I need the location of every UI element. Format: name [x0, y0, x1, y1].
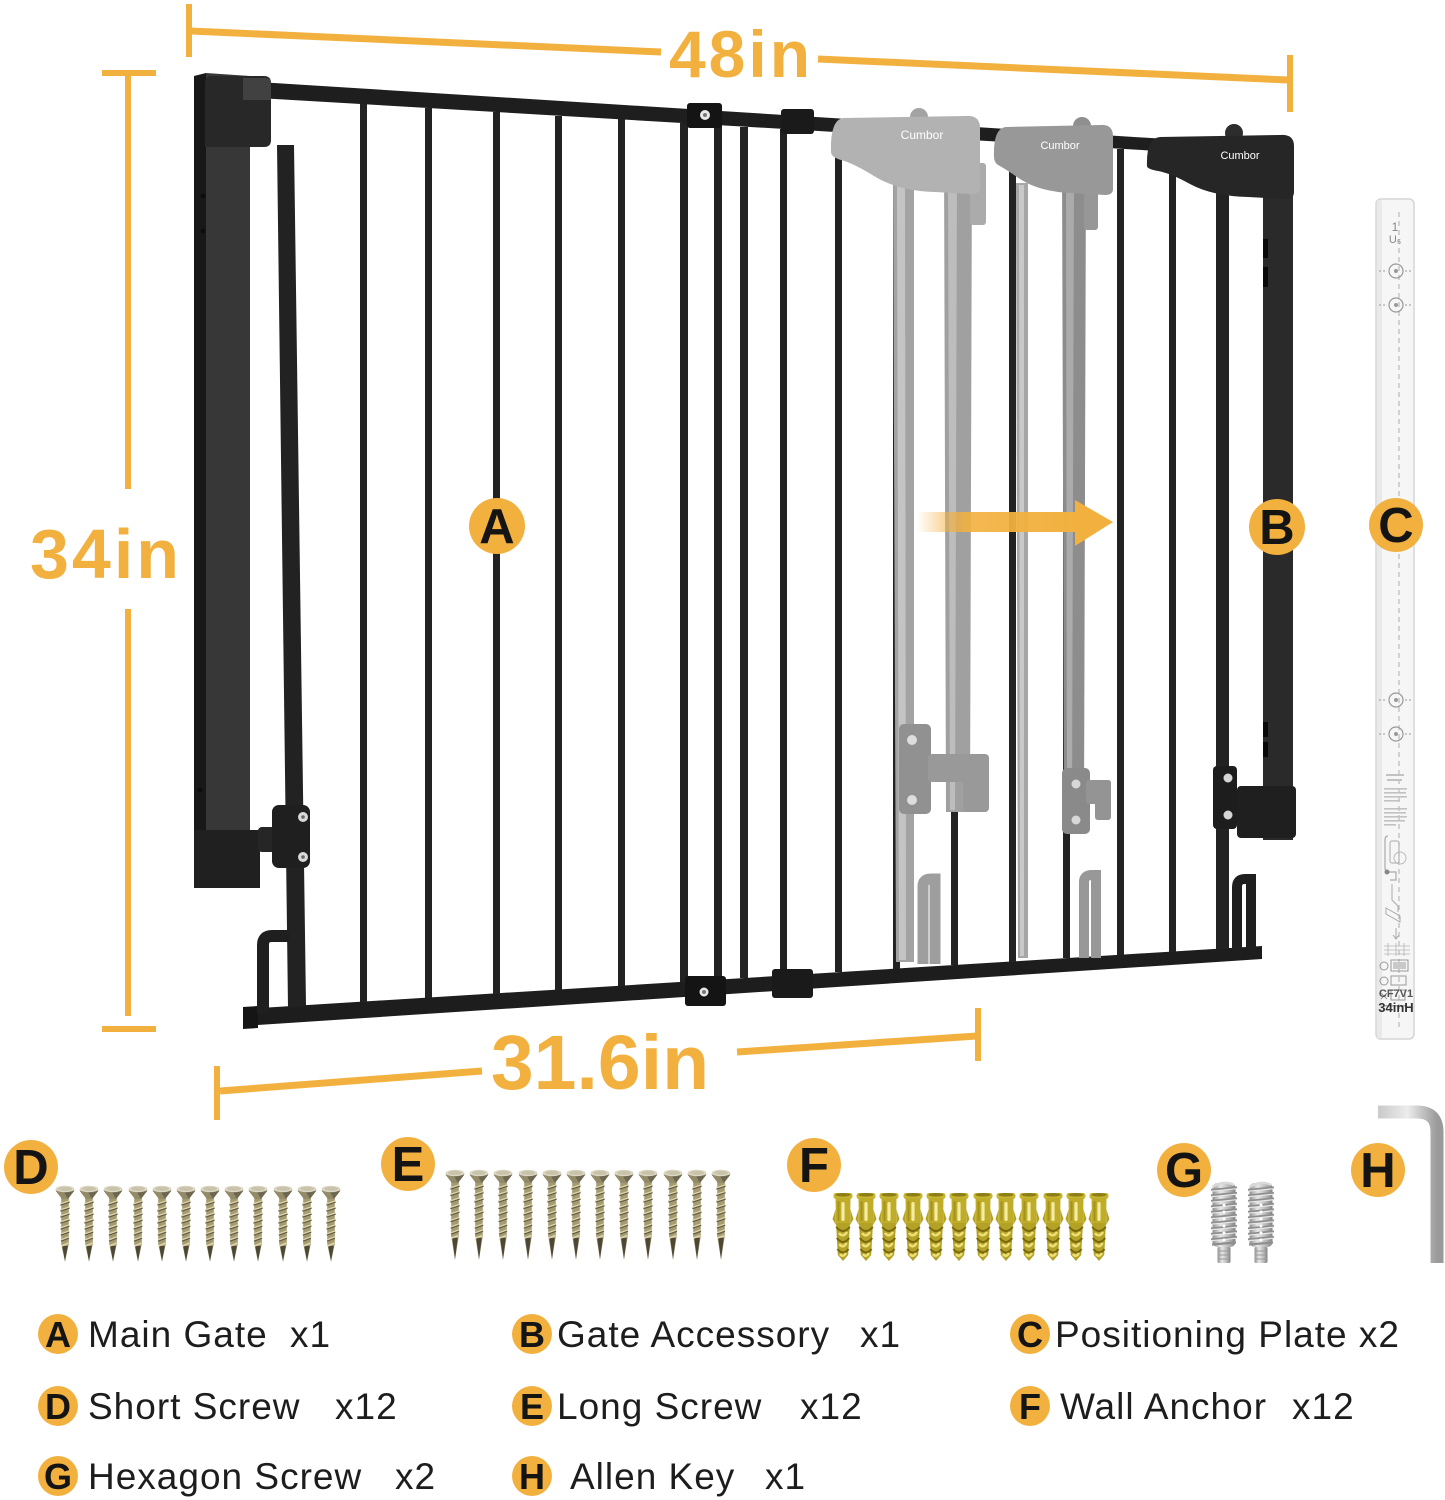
svg-text:Long Screw: Long Screw: [557, 1386, 762, 1427]
svg-text:F: F: [799, 1139, 829, 1193]
svg-text:x2: x2: [395, 1456, 436, 1497]
svg-text:48in: 48in: [669, 17, 813, 91]
svg-text:U₅: U₅: [1389, 234, 1401, 246]
svg-text:CF7V1: CF7V1: [1379, 988, 1413, 1000]
svg-text:31.6in: 31.6in: [491, 1020, 709, 1106]
svg-text:Allen Key: Allen Key: [570, 1456, 735, 1497]
svg-text:1: 1: [1392, 220, 1399, 234]
svg-text:34inH: 34inH: [1378, 1000, 1413, 1015]
svg-text:E: E: [520, 1386, 544, 1427]
svg-text:C: C: [1378, 499, 1413, 553]
svg-text:Main Gate: Main Gate: [88, 1314, 268, 1355]
svg-text:Cumbor: Cumbor: [901, 128, 944, 142]
svg-text:x1: x1: [290, 1314, 331, 1355]
svg-text:x12: x12: [800, 1386, 863, 1427]
svg-text:C: C: [1017, 1314, 1043, 1355]
svg-text:A: A: [45, 1314, 71, 1355]
svg-text:x12: x12: [335, 1386, 398, 1427]
svg-text:x1: x1: [765, 1456, 806, 1497]
svg-text:x1: x1: [860, 1314, 901, 1355]
svg-text:Hexagon Screw: Hexagon Screw: [88, 1456, 362, 1497]
svg-text:B: B: [519, 1314, 545, 1355]
svg-text:H: H: [1360, 1144, 1395, 1198]
svg-text:B: B: [1259, 501, 1294, 555]
svg-text:D: D: [45, 1386, 71, 1427]
svg-text:G: G: [1165, 1144, 1203, 1198]
svg-text:34in: 34in: [30, 515, 182, 593]
svg-text:Short Screw: Short Screw: [88, 1386, 301, 1427]
svg-text:Cumbor: Cumbor: [1220, 150, 1259, 162]
svg-text:E: E: [392, 1138, 425, 1192]
svg-text:F: F: [1019, 1386, 1041, 1427]
svg-text:Wall Anchor: Wall Anchor: [1060, 1386, 1267, 1427]
svg-text:Cumbor: Cumbor: [1040, 140, 1079, 152]
svg-text:A: A: [479, 500, 514, 554]
svg-text:D: D: [13, 1141, 48, 1195]
svg-text:G: G: [44, 1456, 72, 1497]
svg-text:x12: x12: [1292, 1386, 1355, 1427]
svg-text:Gate Accessory: Gate Accessory: [557, 1314, 830, 1355]
svg-text:Positioning Plate x2: Positioning Plate x2: [1055, 1314, 1400, 1355]
svg-text:H: H: [519, 1456, 545, 1497]
